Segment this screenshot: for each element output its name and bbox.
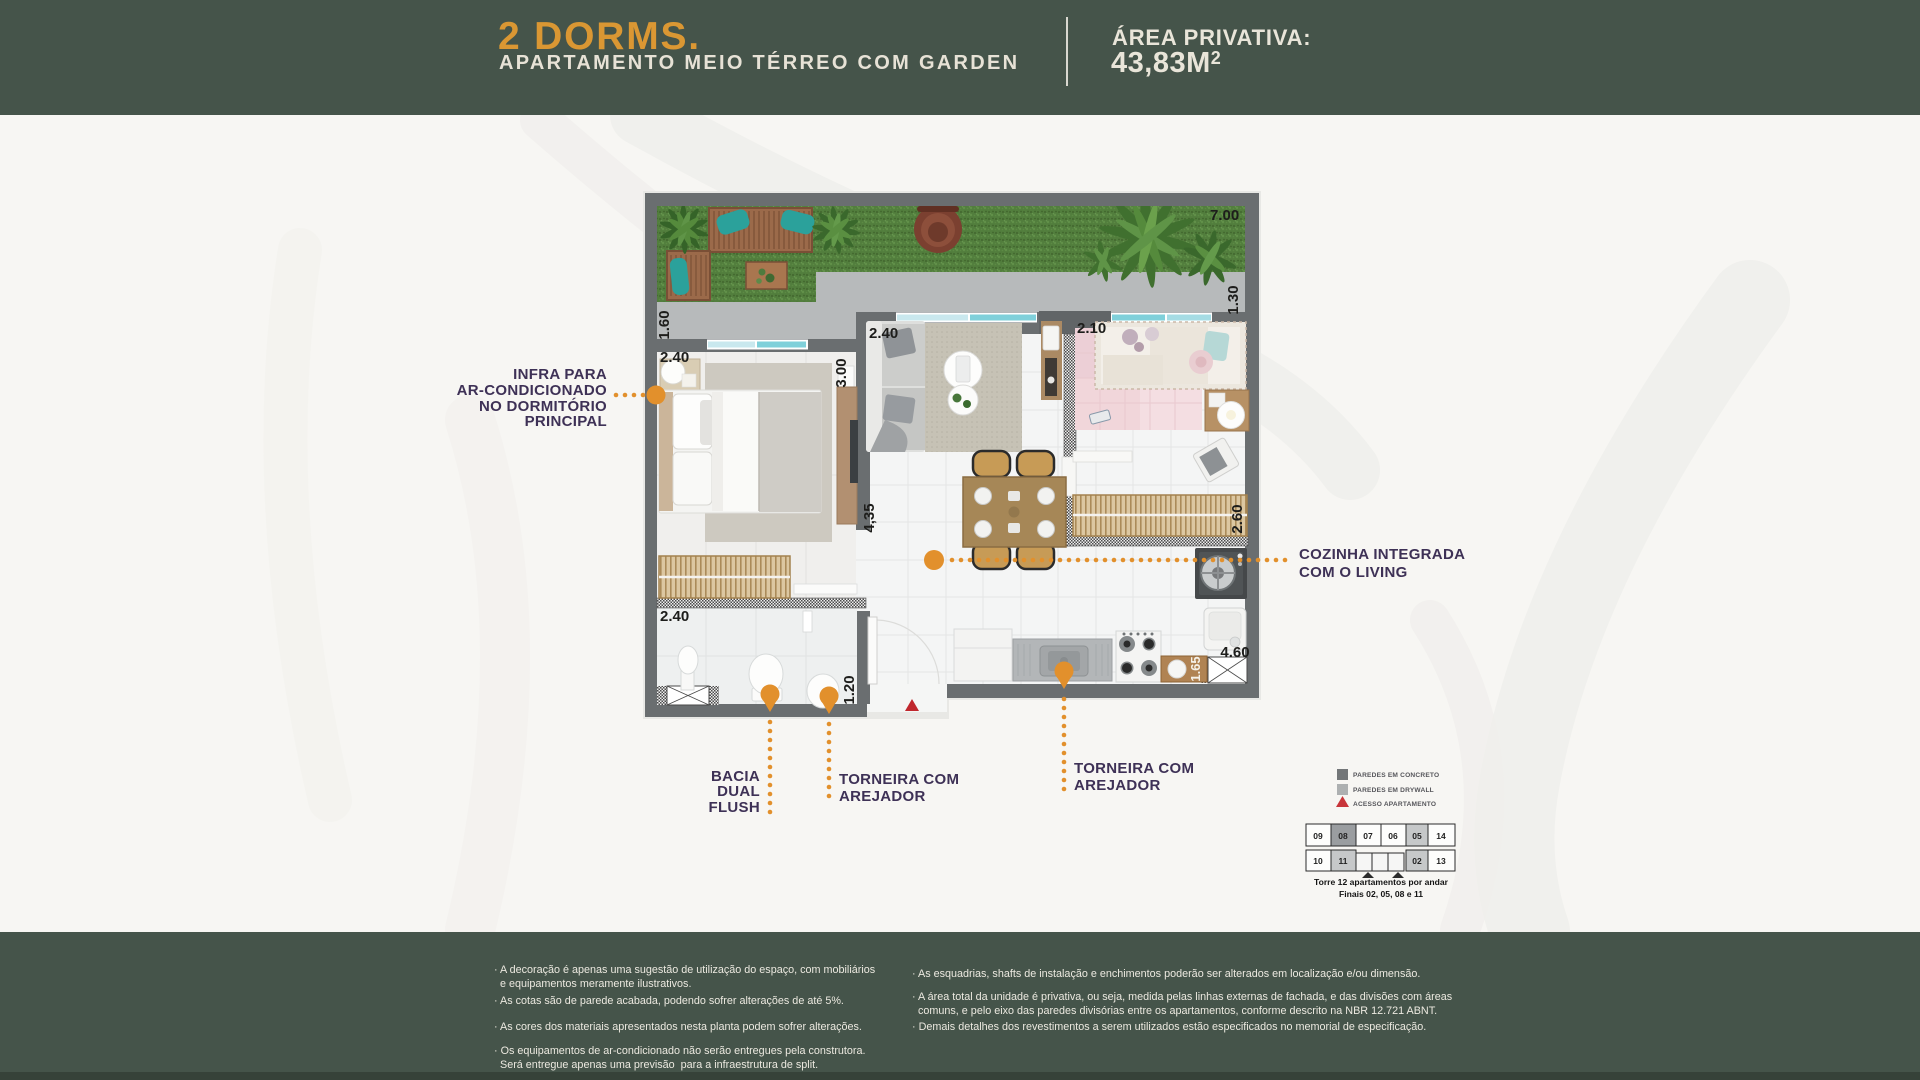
svg-text:PAREDES EM DRYWALL: PAREDES EM DRYWALL bbox=[1353, 787, 1434, 794]
svg-text:05: 05 bbox=[1412, 831, 1422, 841]
svg-text:11: 11 bbox=[1339, 856, 1348, 866]
svg-text:08: 08 bbox=[1338, 831, 1348, 841]
svg-text:2.40: 2.40 bbox=[660, 608, 689, 625]
svg-text:2.60: 2.60 bbox=[1229, 504, 1246, 533]
svg-text:02: 02 bbox=[1412, 856, 1422, 866]
svg-text:1.60: 1.60 bbox=[656, 310, 673, 339]
svg-text:4,35: 4,35 bbox=[861, 503, 878, 532]
svg-text:FLUSH: FLUSH bbox=[709, 799, 761, 816]
svg-text:COM O LIVING: COM O LIVING bbox=[1299, 564, 1408, 581]
svg-text:09: 09 bbox=[1313, 831, 1323, 841]
svg-text:TORNEIRA COM: TORNEIRA COM bbox=[839, 771, 959, 788]
svg-text:TORNEIRA COM: TORNEIRA COM bbox=[1074, 760, 1194, 777]
svg-text:10: 10 bbox=[1313, 856, 1323, 866]
svg-text:PAREDES EM CONCRETO: PAREDES EM CONCRETO bbox=[1353, 772, 1439, 779]
svg-text:1.65: 1.65 bbox=[1188, 656, 1203, 681]
svg-text:1.30: 1.30 bbox=[1225, 285, 1242, 314]
svg-text:1.20: 1.20 bbox=[841, 675, 858, 704]
svg-text:AREJADOR: AREJADOR bbox=[839, 788, 926, 805]
svg-text:7.00: 7.00 bbox=[1210, 207, 1239, 224]
svg-text:2.40: 2.40 bbox=[660, 349, 689, 366]
svg-text:07: 07 bbox=[1363, 831, 1373, 841]
svg-text:AREJADOR: AREJADOR bbox=[1074, 777, 1161, 794]
svg-text:06: 06 bbox=[1388, 831, 1398, 841]
svg-text:4.60: 4.60 bbox=[1220, 644, 1249, 661]
svg-text:INFRA PARA: INFRA PARA bbox=[513, 366, 607, 383]
svg-text:13: 13 bbox=[1436, 856, 1446, 866]
svg-text:2.10: 2.10 bbox=[1077, 320, 1106, 337]
svg-text:14: 14 bbox=[1436, 831, 1446, 841]
svg-text:AR-CONDICIONADO: AR-CONDICIONADO bbox=[457, 382, 607, 399]
svg-text:2.40: 2.40 bbox=[869, 325, 898, 342]
svg-text:PRINCIPAL: PRINCIPAL bbox=[525, 413, 607, 430]
svg-text:3.00: 3.00 bbox=[833, 358, 850, 387]
svg-text:COZINHA INTEGRADA: COZINHA INTEGRADA bbox=[1299, 546, 1465, 563]
svg-text:ACESSO APARTAMENTO: ACESSO APARTAMENTO bbox=[1353, 801, 1436, 808]
svg-text:DUAL: DUAL bbox=[717, 783, 760, 800]
svg-text:Finais 02, 05, 08 e 11: Finais 02, 05, 08 e 11 bbox=[1339, 889, 1423, 899]
svg-text:Torre 12 apartamentos por anda: Torre 12 apartamentos por andar bbox=[1314, 877, 1449, 887]
